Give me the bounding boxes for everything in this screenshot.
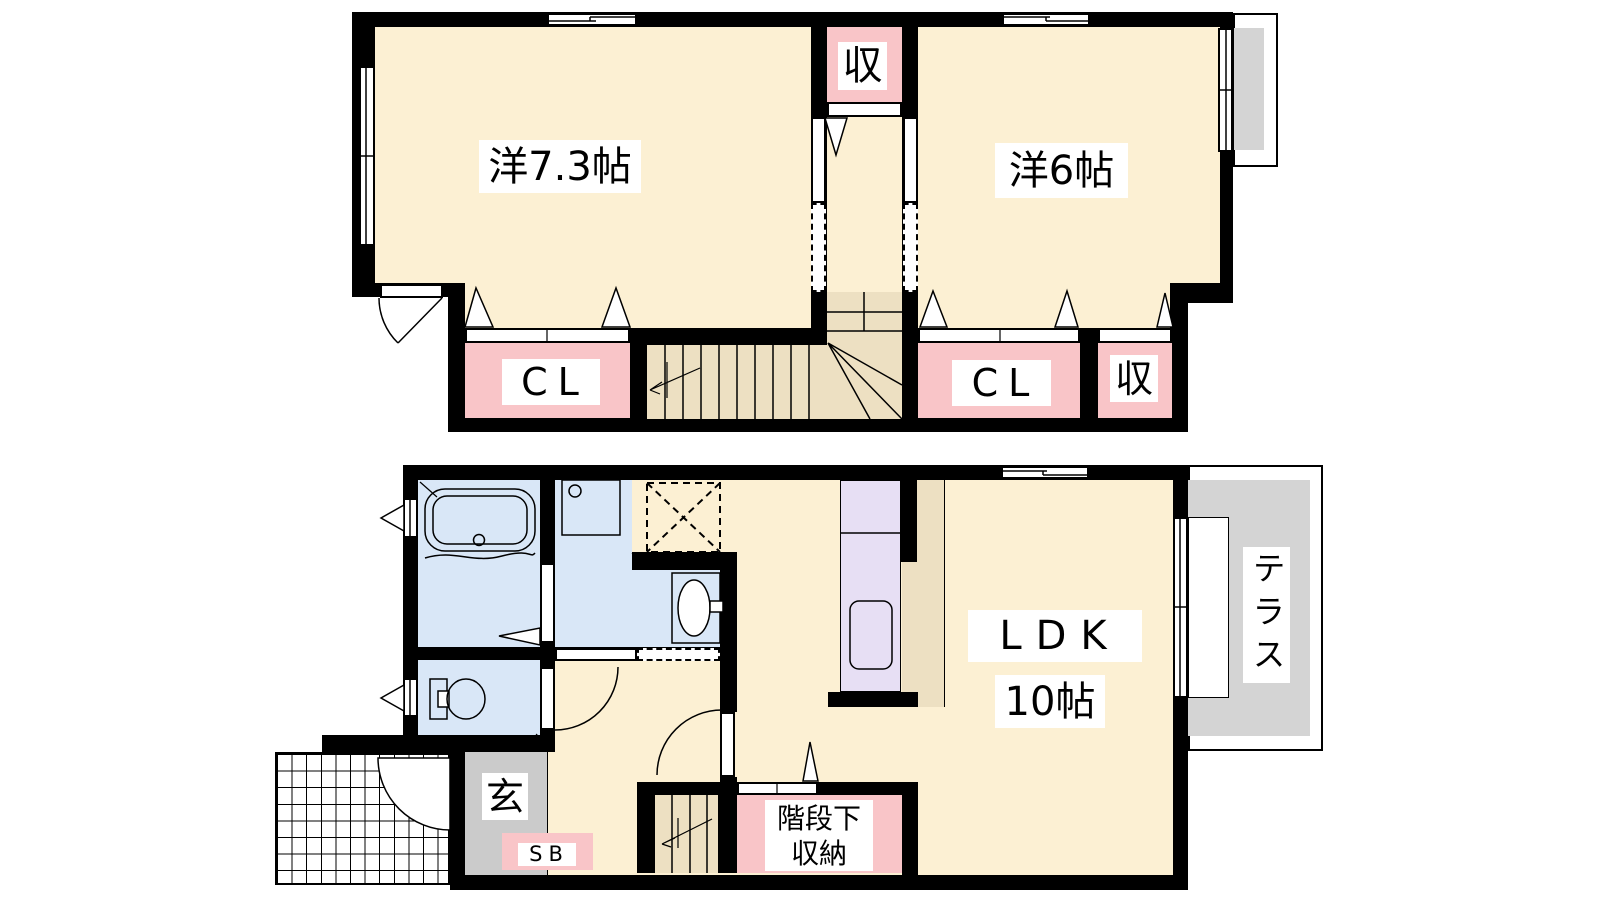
toilet-floor: [418, 660, 540, 735]
storage-right-door: [1098, 328, 1172, 343]
stairs-winder: [827, 292, 902, 419]
room-west6-floor-south: [918, 283, 1170, 328]
stairs-2f-run: [647, 345, 827, 419]
wall-storage-east: [902, 782, 918, 875]
wall-kitchen-east: [901, 480, 917, 562]
stairwell-rail-right: [903, 203, 918, 292]
wall-toilet-south: [418, 735, 540, 752]
bathroom-floor: [418, 480, 540, 647]
wall-washroom-east-h: [632, 552, 737, 570]
stairs-1f-run: [655, 795, 718, 873]
closet-right-door: [918, 328, 1080, 343]
window-west73-left: [359, 66, 375, 246]
washroom-sliding-door: [555, 648, 637, 661]
wall-storage-north: [818, 782, 902, 795]
under-stairs-line2: 収納: [791, 836, 847, 871]
wall-front-door: [450, 752, 465, 885]
room-west73-door: [380, 284, 443, 298]
closet-right-label: CL: [952, 360, 1051, 406]
window-toilet-left: [403, 678, 418, 717]
kitchen-counter: [840, 480, 901, 692]
window-west6-right: [1218, 28, 1233, 152]
window-ldk-top: [1001, 466, 1089, 479]
room-west73-floor-south: [465, 283, 811, 328]
terrace-step: [1188, 517, 1229, 698]
window-west73-top: [547, 13, 637, 26]
ldk-label: LDK: [968, 610, 1142, 662]
stairwell-rail-left: [811, 203, 826, 292]
washroom-floor: [555, 480, 632, 647]
hall2f-doorway-right: [903, 117, 918, 203]
wall-closet-stairs: [630, 343, 647, 432]
under-stairs-storage-door: [737, 782, 818, 795]
storage-right-label: 収: [1110, 355, 1158, 402]
kitchen-side-strip: [902, 562, 917, 692]
hall2f-floor: [827, 117, 902, 292]
shoe-box-label: SB: [518, 843, 576, 866]
window-west6-top: [1002, 13, 1090, 26]
room-west73-label: 洋7.3帖: [479, 140, 641, 193]
hall2f-doorway-left: [811, 117, 826, 203]
floor-plan: 洋7.3帖 洋6帖 収 CL CL 収 LDK 10帖 テラス 玄 SB 階段下…: [0, 0, 1600, 900]
toilet-door: [540, 667, 555, 730]
under-stairs-storage-label: 階段下 収納: [765, 800, 873, 871]
closet-left-label: CL: [502, 359, 600, 405]
wall-porch-north: [322, 735, 418, 752]
storage-top-door: [827, 102, 902, 117]
under-stairs-line1: 階段下: [777, 801, 861, 836]
closet-left-door: [465, 328, 630, 343]
wall-kitchen-south: [828, 692, 918, 707]
terrace-label: テラス: [1243, 547, 1290, 683]
entrance-porch: [275, 752, 450, 885]
bathroom-door: [540, 563, 555, 643]
balcony-floor: [1234, 28, 1264, 150]
floor2-notch-left: [352, 297, 448, 432]
wall-stairs1-west: [637, 782, 655, 873]
window-bathroom-left: [403, 498, 418, 538]
ldk-door: [720, 712, 735, 777]
room-west6-label: 洋6帖: [995, 143, 1128, 198]
wall-hall-ldk: [720, 570, 737, 712]
kitchen-floor-strip: [917, 480, 945, 707]
wall-stairs1-north: [637, 782, 718, 795]
wall-stairs1-east: [718, 782, 737, 873]
washroom-sliding-track: [637, 648, 720, 661]
ldk-size-label: 10帖: [995, 675, 1105, 728]
washroom-floor-east: [632, 570, 720, 647]
storage-top-label: 収: [838, 42, 887, 90]
floor2-notch-right: [1188, 303, 1233, 432]
window-terrace-slider: [1173, 517, 1188, 698]
entrance-label: 玄: [482, 773, 528, 820]
